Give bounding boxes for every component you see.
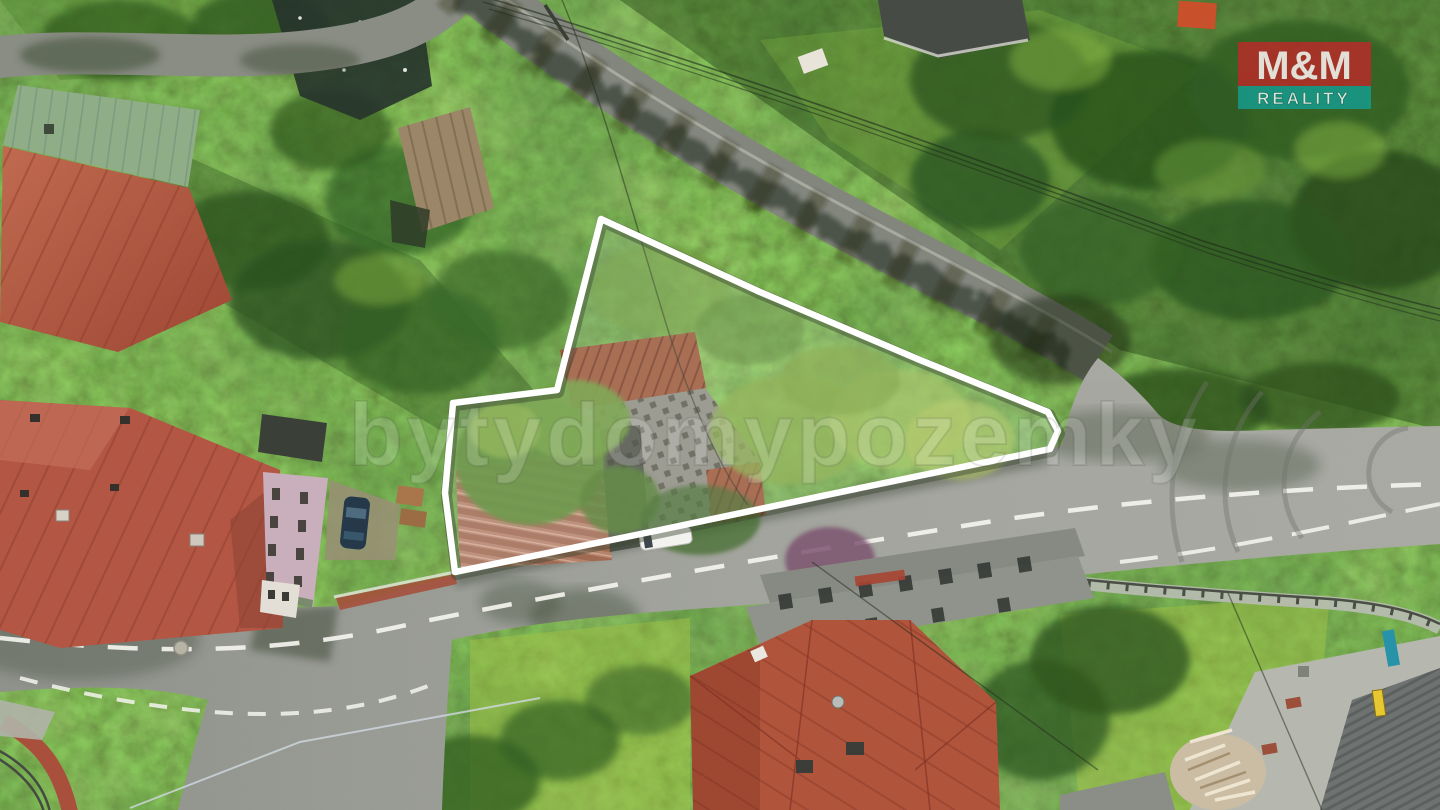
parked-car bbox=[339, 496, 370, 550]
watermark: bytydomypozemky bbox=[349, 385, 1201, 484]
gable-window-1 bbox=[268, 590, 275, 599]
chimney-2 bbox=[846, 742, 864, 755]
yard-hatch bbox=[1298, 666, 1309, 677]
chimney-green-roof bbox=[44, 124, 54, 134]
white-gable-wall bbox=[260, 580, 300, 618]
logo-text-reality: REALITY bbox=[1257, 89, 1351, 108]
manhole-cover bbox=[174, 641, 188, 655]
satellite-dish bbox=[832, 696, 844, 708]
gable-window-2 bbox=[282, 592, 289, 601]
aerial-photo-listing: bytydomypozemky M&M REALITY bbox=[0, 0, 1440, 810]
wood-pallet-1 bbox=[396, 485, 424, 506]
orange-container bbox=[1177, 1, 1217, 30]
aerial-photo-canvas: bytydomypozemky M&M REALITY bbox=[0, 0, 1440, 810]
watermark-text: bytydomypozemky bbox=[349, 385, 1201, 484]
agency-logo: M&M REALITY bbox=[1238, 42, 1371, 109]
logo-text-mm: M&M bbox=[1256, 44, 1352, 88]
chimney-1 bbox=[796, 760, 813, 773]
